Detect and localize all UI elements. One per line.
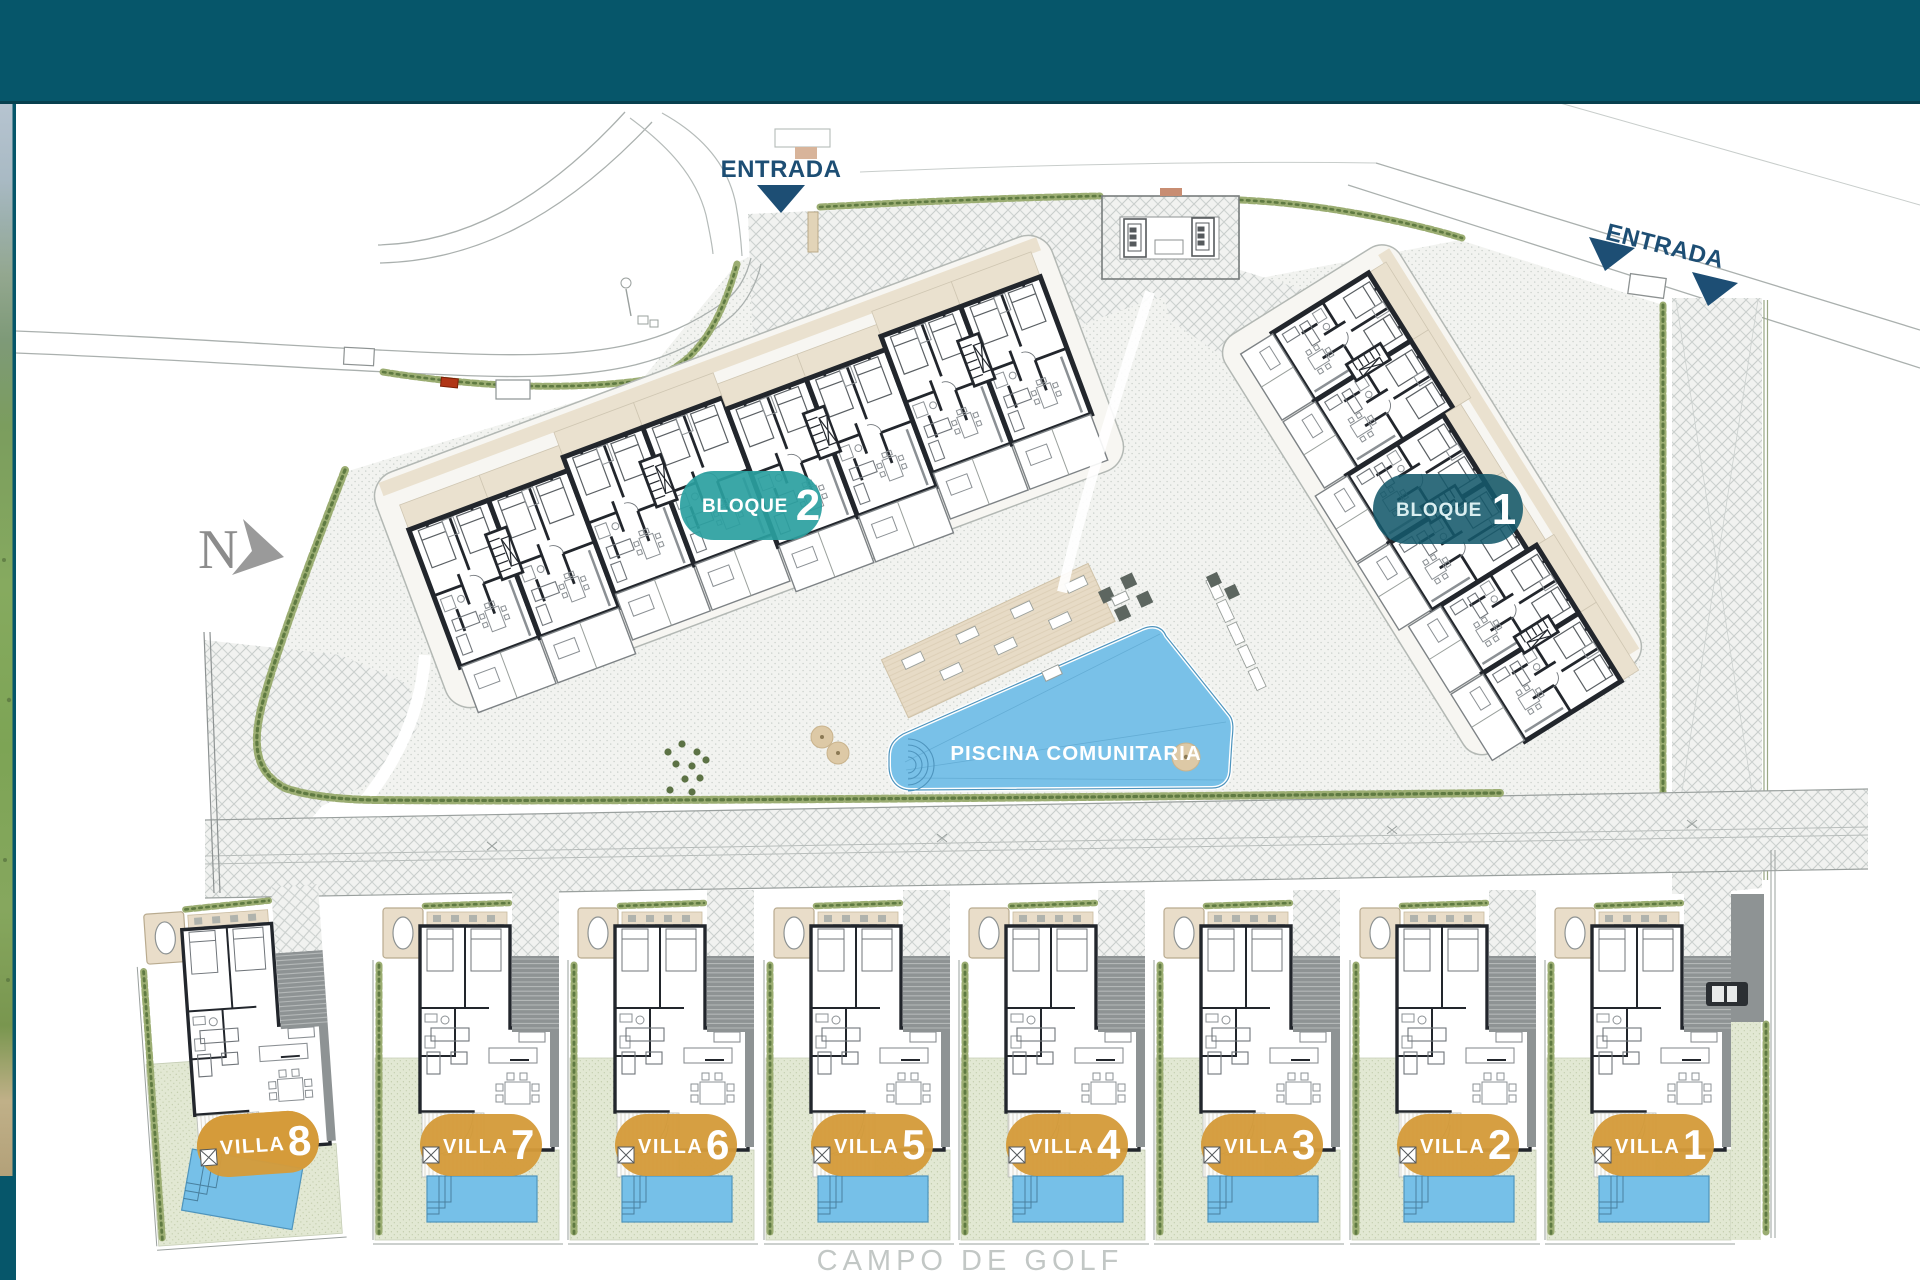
svg-text:2: 2 xyxy=(796,481,820,530)
svg-text:1: 1 xyxy=(1492,485,1516,534)
svg-text:VILLA: VILLA xyxy=(1224,1136,1289,1158)
svg-text:VILLA: VILLA xyxy=(1615,1136,1680,1158)
svg-text:1: 1 xyxy=(1683,1121,1706,1168)
svg-text:N: N xyxy=(198,519,238,581)
svg-text:BLOQUE: BLOQUE xyxy=(1396,500,1482,521)
svg-text:6: 6 xyxy=(706,1121,729,1168)
svg-text:BLOQUE: BLOQUE xyxy=(702,496,788,517)
svg-text:2: 2 xyxy=(1488,1121,1511,1168)
svg-text:VILLA: VILLA xyxy=(638,1136,703,1158)
svg-text:VILLA: VILLA xyxy=(1420,1136,1485,1158)
svg-text:VILLA: VILLA xyxy=(1029,1136,1094,1158)
svg-text:8: 8 xyxy=(286,1116,313,1165)
svg-text:VILLA: VILLA xyxy=(443,1136,508,1158)
svg-text:CAMPO DE GOLF: CAMPO DE GOLF xyxy=(817,1245,1124,1277)
svg-text:4: 4 xyxy=(1097,1121,1121,1168)
svg-text:VILLA: VILLA xyxy=(219,1133,286,1160)
svg-text:3: 3 xyxy=(1292,1121,1315,1168)
svg-text:ENTRADA: ENTRADA xyxy=(721,156,842,183)
svg-text:VILLA: VILLA xyxy=(834,1136,899,1158)
svg-text:5: 5 xyxy=(902,1121,925,1168)
svg-text:PISCINA COMUNITARIA: PISCINA COMUNITARIA xyxy=(950,742,1201,765)
svg-text:7: 7 xyxy=(511,1121,534,1168)
